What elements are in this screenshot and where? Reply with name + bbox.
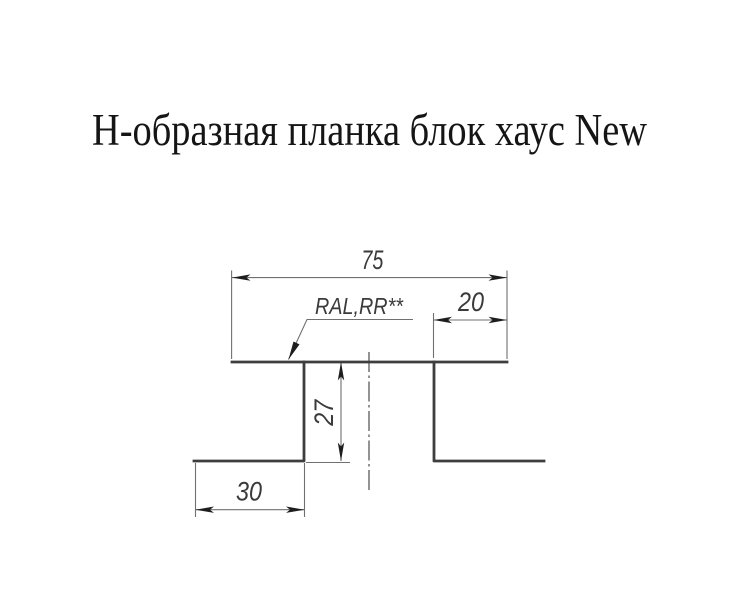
svg-text:RAL,RR**: RAL,RR** <box>315 293 404 319</box>
svg-text:27: 27 <box>309 399 339 427</box>
svg-text:20: 20 <box>457 287 484 317</box>
svg-text:75: 75 <box>361 245 384 275</box>
svg-text:Н-образная планка блок хаус Ne: Н-образная планка блок хаус New <box>92 105 647 155</box>
svg-text:30: 30 <box>236 477 262 507</box>
